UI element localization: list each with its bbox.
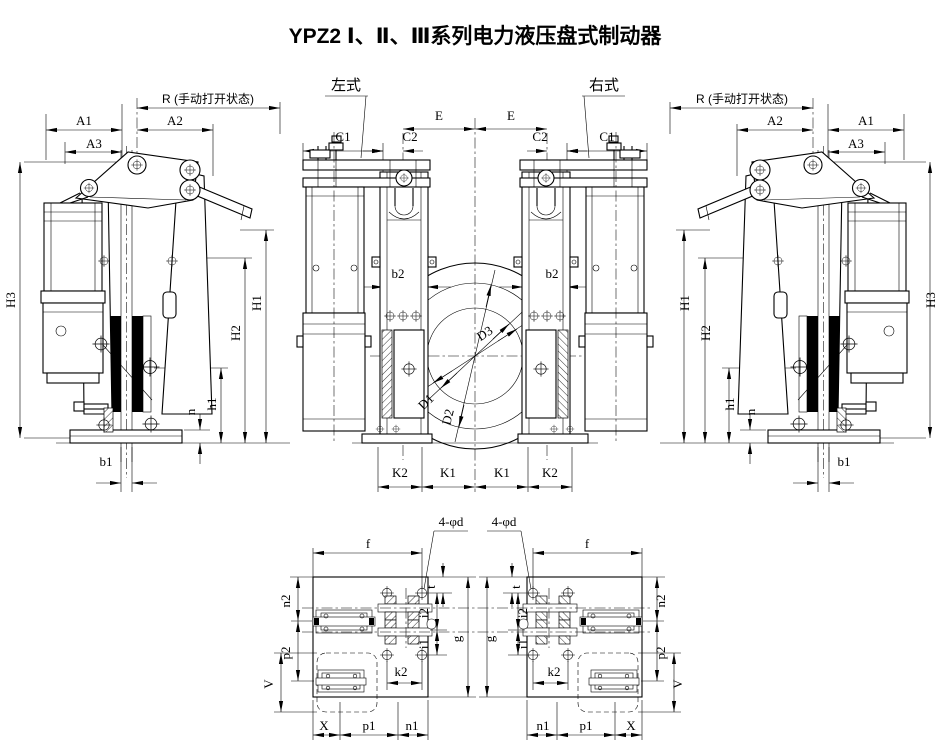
drawing-page: YPZ2 Ⅰ、Ⅱ、Ⅲ系列电力液压盘式制动器 R (手动打开状态) A1 A2 A… bbox=[0, 0, 950, 750]
dim-label-h1-right: H1 bbox=[677, 295, 692, 311]
dim-label-holes-left: 4-φd bbox=[439, 514, 464, 529]
dim-label-a1-right: A1 bbox=[858, 113, 874, 128]
dim-label-b2-right: b2 bbox=[546, 266, 559, 281]
dim-label-n2-left: n2 bbox=[278, 595, 293, 608]
dim-label-a3-left: A3 bbox=[86, 136, 102, 151]
dim-label-k2-lower-left: k2 bbox=[395, 664, 408, 679]
dim-label-i2-right: i2 bbox=[515, 608, 530, 618]
dim-label-h3-left: H3 bbox=[3, 292, 18, 308]
dim-label-holes-right: 4-φd bbox=[492, 514, 517, 529]
dim-label-h2-right: H2 bbox=[698, 325, 713, 341]
dim-label-e-left: E bbox=[435, 108, 443, 123]
dim-label-p2-right: p2 bbox=[653, 647, 668, 660]
view-label-left-type: 左式 bbox=[331, 77, 361, 94]
view-label-right-type: 右式 bbox=[589, 77, 619, 94]
dim-label-h2-left: H2 bbox=[228, 325, 243, 341]
brake-technical-drawing: YPZ2 Ⅰ、Ⅱ、Ⅲ系列电力液压盘式制动器 R (手动打开状态) A1 A2 A… bbox=[0, 0, 950, 750]
dim-label-t-right: t bbox=[508, 585, 523, 589]
dim-label-k2-left: K2 bbox=[392, 465, 408, 480]
dim-label-h1-left: H1 bbox=[249, 295, 264, 311]
dim-label-b1-left: b1 bbox=[100, 454, 113, 469]
dim-label-i2-left: i2 bbox=[416, 608, 431, 618]
dim-label-e-right: E bbox=[507, 108, 515, 123]
dim-label-a2-left: A2 bbox=[167, 113, 183, 128]
dim-label-v-left: V bbox=[261, 679, 276, 689]
dim-label-p1-right: p1 bbox=[580, 718, 593, 733]
dim-label-b2-left: b2 bbox=[392, 266, 405, 281]
dim-label-n-right: n bbox=[743, 408, 758, 415]
dim-label-c1-right: C1 bbox=[599, 129, 614, 144]
dim-label-h3-right: H3 bbox=[923, 292, 938, 308]
dim-label-i1-right: i1 bbox=[515, 639, 530, 649]
dim-label-k2-right: K2 bbox=[542, 465, 558, 480]
dim-label-n1-left: n1 bbox=[406, 718, 419, 733]
drawing-title: YPZ2 Ⅰ、Ⅱ、Ⅲ系列电力液压盘式制动器 bbox=[289, 24, 663, 48]
dim-label-b1-right: b1 bbox=[838, 454, 851, 469]
dim-label-k1-right: K1 bbox=[494, 465, 510, 480]
dim-label-c1-left: C1 bbox=[335, 129, 350, 144]
dim-label-p1-left: p1 bbox=[363, 718, 376, 733]
dim-label-v-right: V bbox=[670, 679, 685, 689]
dim-label-c2-right: C2 bbox=[532, 129, 547, 144]
dim-label-g-left: g bbox=[449, 635, 464, 642]
dim-label-c2-left: C2 bbox=[402, 129, 417, 144]
dim-label-i1-left: i1 bbox=[416, 639, 431, 649]
dim-label-a2-right: A2 bbox=[767, 113, 783, 128]
dim-label-k1-left: K1 bbox=[440, 465, 456, 480]
dim-label-g-right: g bbox=[482, 635, 497, 642]
dim-label-n1-right: n1 bbox=[537, 718, 550, 733]
dim-label-r-right: R (手动打开状态) bbox=[696, 92, 788, 106]
dim-label-t-left: t bbox=[423, 585, 438, 589]
dim-label-x-right: X bbox=[626, 718, 636, 733]
dim-label-r-left: R (手动打开状态) bbox=[162, 92, 254, 106]
dim-label-h1-lower-right: h1 bbox=[722, 398, 737, 411]
dim-label-a3-right: A3 bbox=[848, 136, 864, 151]
dim-label-n-left: n bbox=[183, 408, 198, 415]
dim-label-f-right: f bbox=[585, 536, 590, 551]
dim-label-p2-left: p2 bbox=[278, 647, 293, 660]
dim-label-n2-right: n2 bbox=[653, 595, 668, 608]
dim-label-h1-lower-left: h1 bbox=[204, 398, 219, 411]
dim-label-k2-lower-right: k2 bbox=[548, 664, 561, 679]
dim-label-x-left: X bbox=[319, 718, 329, 733]
dim-label-a1-left: A1 bbox=[76, 113, 92, 128]
dim-label-f-left: f bbox=[366, 536, 371, 551]
